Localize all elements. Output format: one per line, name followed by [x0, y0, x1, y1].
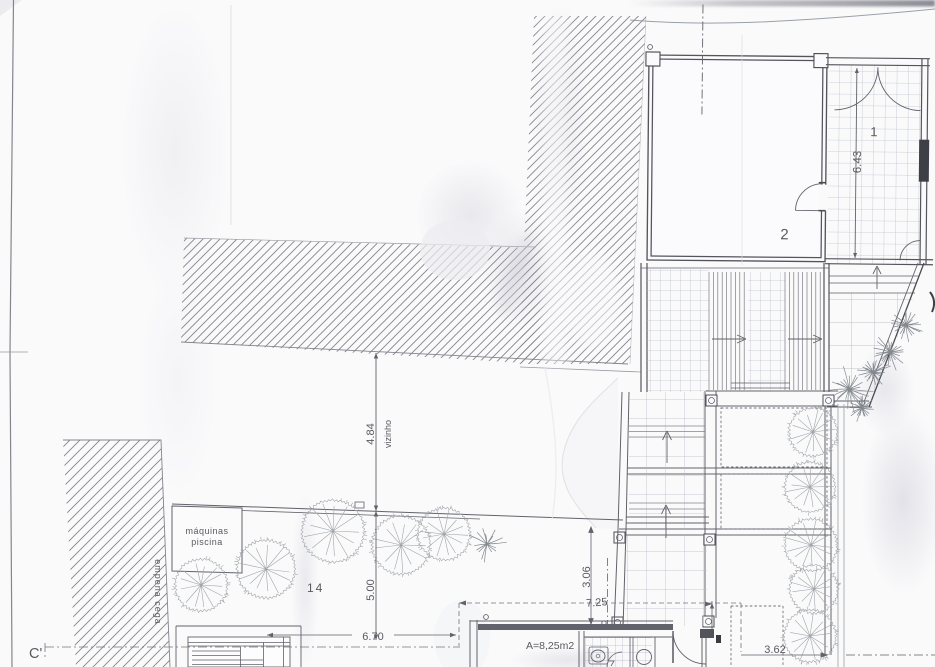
- svg-text:7.25: 7.25: [586, 596, 608, 609]
- svg-text:piscina: piscina: [191, 537, 223, 547]
- svg-text:6.43: 6.43: [852, 151, 864, 174]
- svg-text:6.70: 6.70: [362, 631, 383, 643]
- svg-text:3.62: 3.62: [764, 644, 785, 656]
- svg-text:empena cega: empena cega: [153, 559, 163, 625]
- svg-text:4.84: 4.84: [365, 423, 377, 444]
- svg-text:1: 1: [870, 124, 877, 139]
- svg-text:vizinho: vizinho: [383, 420, 393, 448]
- svg-text:A=8,25m2: A=8,25m2: [526, 640, 574, 652]
- svg-text:C': C': [29, 646, 42, 662]
- svg-text:2: 2: [780, 226, 789, 243]
- svg-text:máquinas: máquinas: [185, 526, 228, 536]
- svg-text:14: 14: [307, 581, 324, 595]
- svg-text:5.00: 5.00: [365, 579, 377, 600]
